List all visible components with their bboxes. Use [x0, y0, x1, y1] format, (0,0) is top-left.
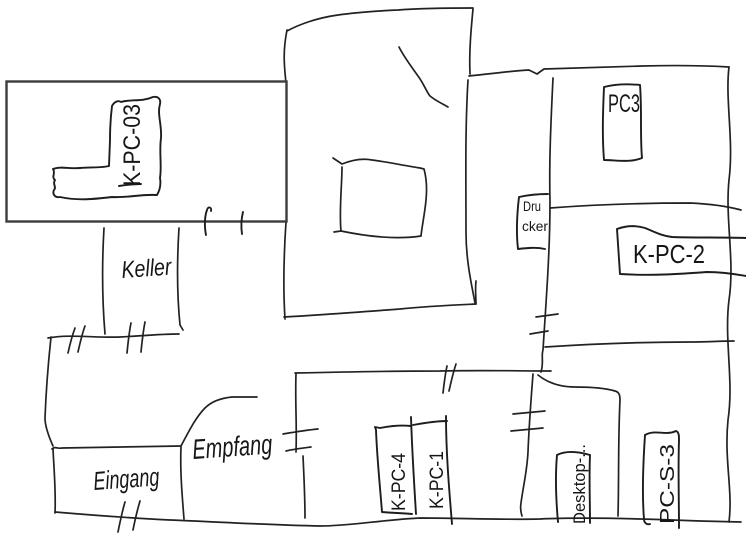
svg-text:Eingang: Eingang — [92, 461, 160, 496]
svg-text:PC3: PC3 — [608, 90, 640, 118]
svg-text:cker: cker — [522, 218, 548, 234]
svg-text:Keller: Keller — [121, 254, 174, 284]
svg-text:K-PC-4: K-PC-4 — [389, 453, 410, 511]
svg-text:Dru: Dru — [523, 198, 541, 214]
svg-text:Desktop-...: Desktop-... — [570, 444, 589, 524]
svg-text:K-PC-2: K-PC-2 — [633, 239, 705, 269]
svg-text:K-PC-1: K-PC-1 — [427, 451, 448, 509]
svg-text:K-PC-03: K-PC-03 — [119, 104, 146, 186]
svg-text:PC-S-3: PC-S-3 — [657, 444, 679, 524]
svg-text:Empfang: Empfang — [191, 428, 273, 465]
